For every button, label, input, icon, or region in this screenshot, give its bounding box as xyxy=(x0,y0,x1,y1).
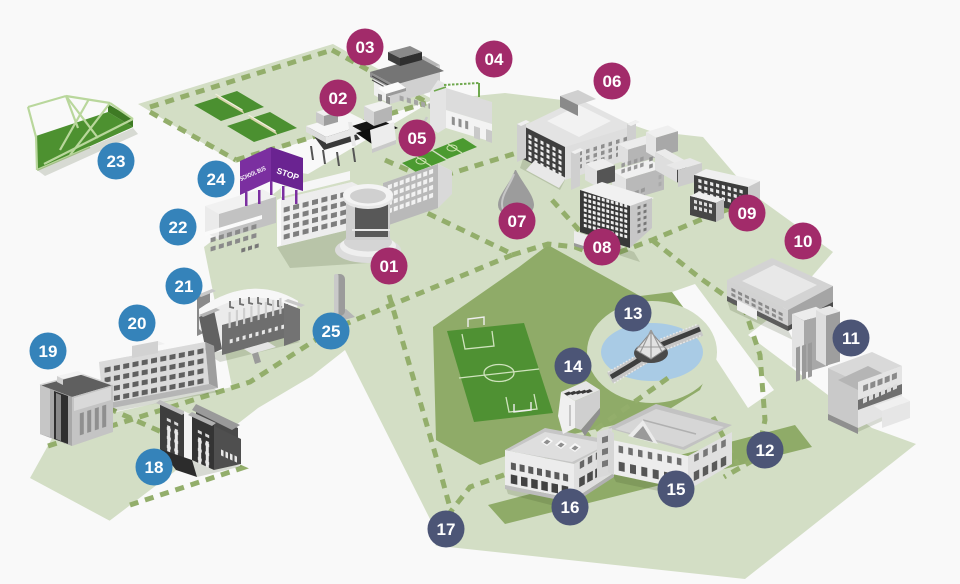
svg-text:07: 07 xyxy=(508,212,527,231)
svg-text:02: 02 xyxy=(329,89,348,108)
svg-text:24: 24 xyxy=(207,170,226,189)
svg-text:09: 09 xyxy=(738,204,757,223)
svg-text:06: 06 xyxy=(603,72,622,91)
svg-text:23: 23 xyxy=(107,152,126,171)
svg-text:11: 11 xyxy=(842,329,860,348)
svg-text:08: 08 xyxy=(593,238,612,257)
svg-text:14: 14 xyxy=(564,357,583,376)
svg-text:10: 10 xyxy=(794,232,813,251)
svg-text:13: 13 xyxy=(624,304,643,323)
svg-text:01: 01 xyxy=(380,257,399,276)
svg-text:03: 03 xyxy=(356,38,375,57)
svg-text:25: 25 xyxy=(322,322,341,341)
svg-text:04: 04 xyxy=(485,50,504,69)
svg-text:18: 18 xyxy=(145,458,164,477)
svg-text:05: 05 xyxy=(408,129,427,148)
svg-text:12: 12 xyxy=(756,441,775,460)
svg-text:22: 22 xyxy=(169,218,188,237)
svg-text:21: 21 xyxy=(175,277,194,296)
svg-text:15: 15 xyxy=(667,480,686,499)
svg-text:16: 16 xyxy=(561,498,580,517)
svg-text:17: 17 xyxy=(437,520,456,539)
svg-text:20: 20 xyxy=(128,314,147,333)
svg-text:19: 19 xyxy=(39,342,58,361)
